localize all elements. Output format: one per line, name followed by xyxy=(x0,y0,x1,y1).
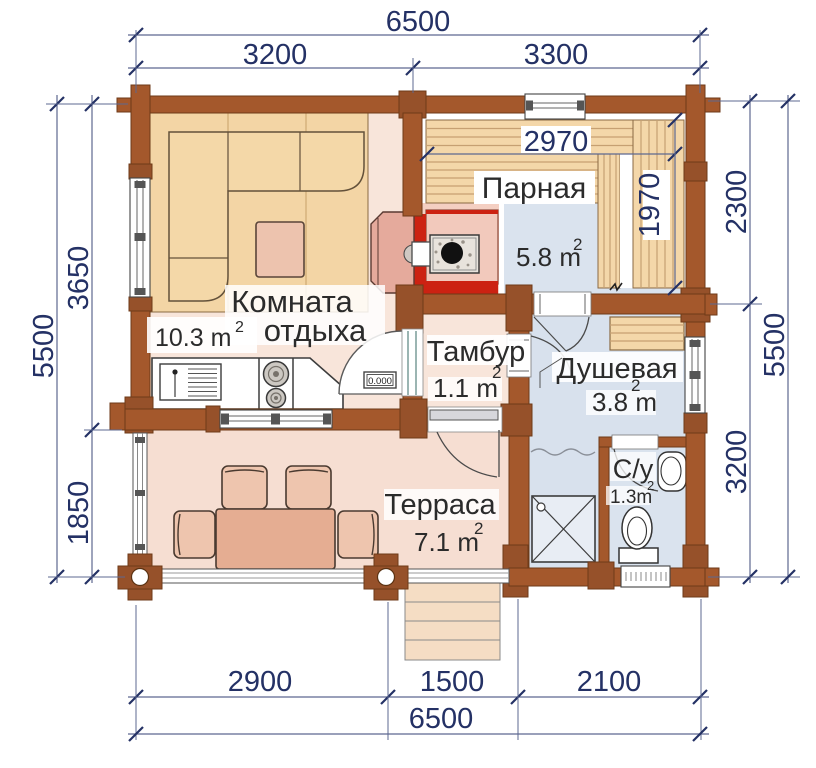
svg-text:2970: 2970 xyxy=(524,126,589,158)
svg-text:1500: 1500 xyxy=(420,666,485,698)
svg-text:1.1 m: 1.1 m xyxy=(433,373,498,403)
svg-text:Душевая: Душевая xyxy=(556,353,677,385)
svg-text:6500: 6500 xyxy=(409,703,474,735)
svg-text:3200: 3200 xyxy=(721,430,753,495)
svg-text:5500: 5500 xyxy=(759,313,791,378)
svg-text:0.000: 0.000 xyxy=(368,376,392,387)
svg-text:2: 2 xyxy=(492,363,501,382)
svg-text:2300: 2300 xyxy=(721,170,753,235)
svg-text:3.8 m: 3.8 m xyxy=(592,387,657,417)
svg-text:2900: 2900 xyxy=(228,666,293,698)
svg-text:2: 2 xyxy=(235,319,244,336)
svg-text:2: 2 xyxy=(573,235,582,254)
svg-text:1.3m: 1.3m xyxy=(610,487,652,508)
svg-text:2100: 2100 xyxy=(577,666,642,698)
svg-text:3650: 3650 xyxy=(63,246,95,311)
svg-text:6500: 6500 xyxy=(386,6,451,38)
svg-text:2: 2 xyxy=(631,376,640,395)
svg-text:3300: 3300 xyxy=(524,39,589,71)
svg-text:1850: 1850 xyxy=(63,481,95,546)
svg-text:5500: 5500 xyxy=(28,314,60,379)
svg-text:7.1 m: 7.1 m xyxy=(414,527,479,557)
svg-text:10.3 m: 10.3 m xyxy=(155,324,231,352)
svg-text:отдыха: отдыха xyxy=(264,313,367,348)
svg-text:5.8 m: 5.8 m xyxy=(516,242,581,272)
svg-text:2: 2 xyxy=(647,478,654,493)
svg-text:3200: 3200 xyxy=(243,39,308,71)
svg-text:Терраса: Терраса xyxy=(384,489,496,521)
svg-text:1970: 1970 xyxy=(634,173,666,238)
svg-text:Тамбур: Тамбур xyxy=(427,336,525,368)
svg-text:Парная: Парная xyxy=(482,172,586,205)
svg-text:2: 2 xyxy=(474,519,483,538)
